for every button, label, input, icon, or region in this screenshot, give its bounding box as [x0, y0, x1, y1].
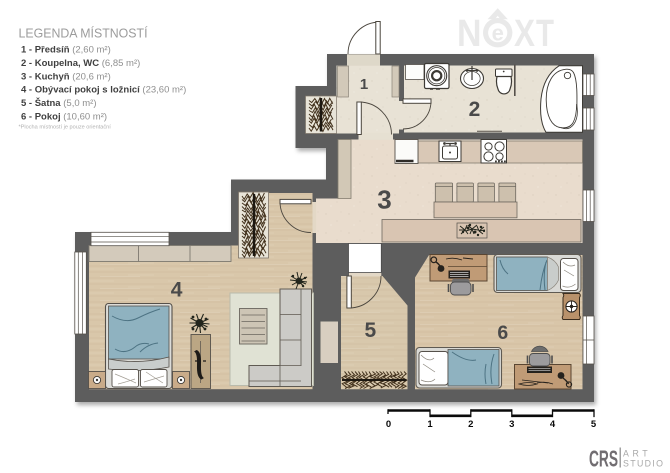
- svg-text:5: 5: [364, 319, 376, 342]
- svg-text:4 - Obývací pokoj s ložnicí (2: 4 - Obývací pokoj s ložnicí (23,60 m²): [21, 85, 186, 96]
- svg-text:*Plocha místností je pouze ori: *Plocha místností je pouze orientační: [19, 124, 112, 130]
- svg-text:5 - Šatna (5,0 m²): 5 - Šatna (5,0 m²): [21, 97, 97, 109]
- svg-text:4: 4: [171, 279, 183, 302]
- svg-text:N: N: [457, 13, 482, 55]
- svg-text:e: e: [492, 21, 504, 46]
- svg-text:3 - Kuchyň (20,6 m²): 3 - Kuchyň (20,6 m²): [21, 71, 111, 82]
- svg-text:2 - Koupelna, WC (6,85 m²): 2 - Koupelna, WC (6,85 m²): [21, 58, 140, 69]
- svg-text:0: 0: [386, 419, 391, 430]
- svg-text:1: 1: [360, 76, 368, 93]
- svg-text:5: 5: [591, 419, 597, 430]
- svg-text:ART: ART: [623, 449, 651, 459]
- svg-text:CRS: CRS: [589, 446, 618, 472]
- svg-text:3: 3: [377, 185, 391, 215]
- svg-text:T: T: [536, 13, 554, 55]
- svg-text:4: 4: [550, 419, 556, 430]
- svg-text:LEGENDA MÍSTNOSTÍ: LEGENDA MÍSTNOSTÍ: [19, 26, 148, 41]
- svg-text:2: 2: [469, 98, 481, 121]
- svg-text:6: 6: [497, 322, 508, 344]
- svg-text:1 - Předsíň (2,60 m²): 1 - Předsíň (2,60 m²): [21, 45, 111, 56]
- svg-text:2: 2: [468, 419, 473, 430]
- svg-text:STUDIO: STUDIO: [623, 459, 664, 469]
- svg-text:6 - Pokoj (10,60 m²): 6 - Pokoj (10,60 m²): [21, 112, 107, 123]
- svg-text:3: 3: [509, 419, 514, 430]
- svg-text:1: 1: [427, 419, 433, 430]
- svg-text:X: X: [514, 13, 536, 55]
